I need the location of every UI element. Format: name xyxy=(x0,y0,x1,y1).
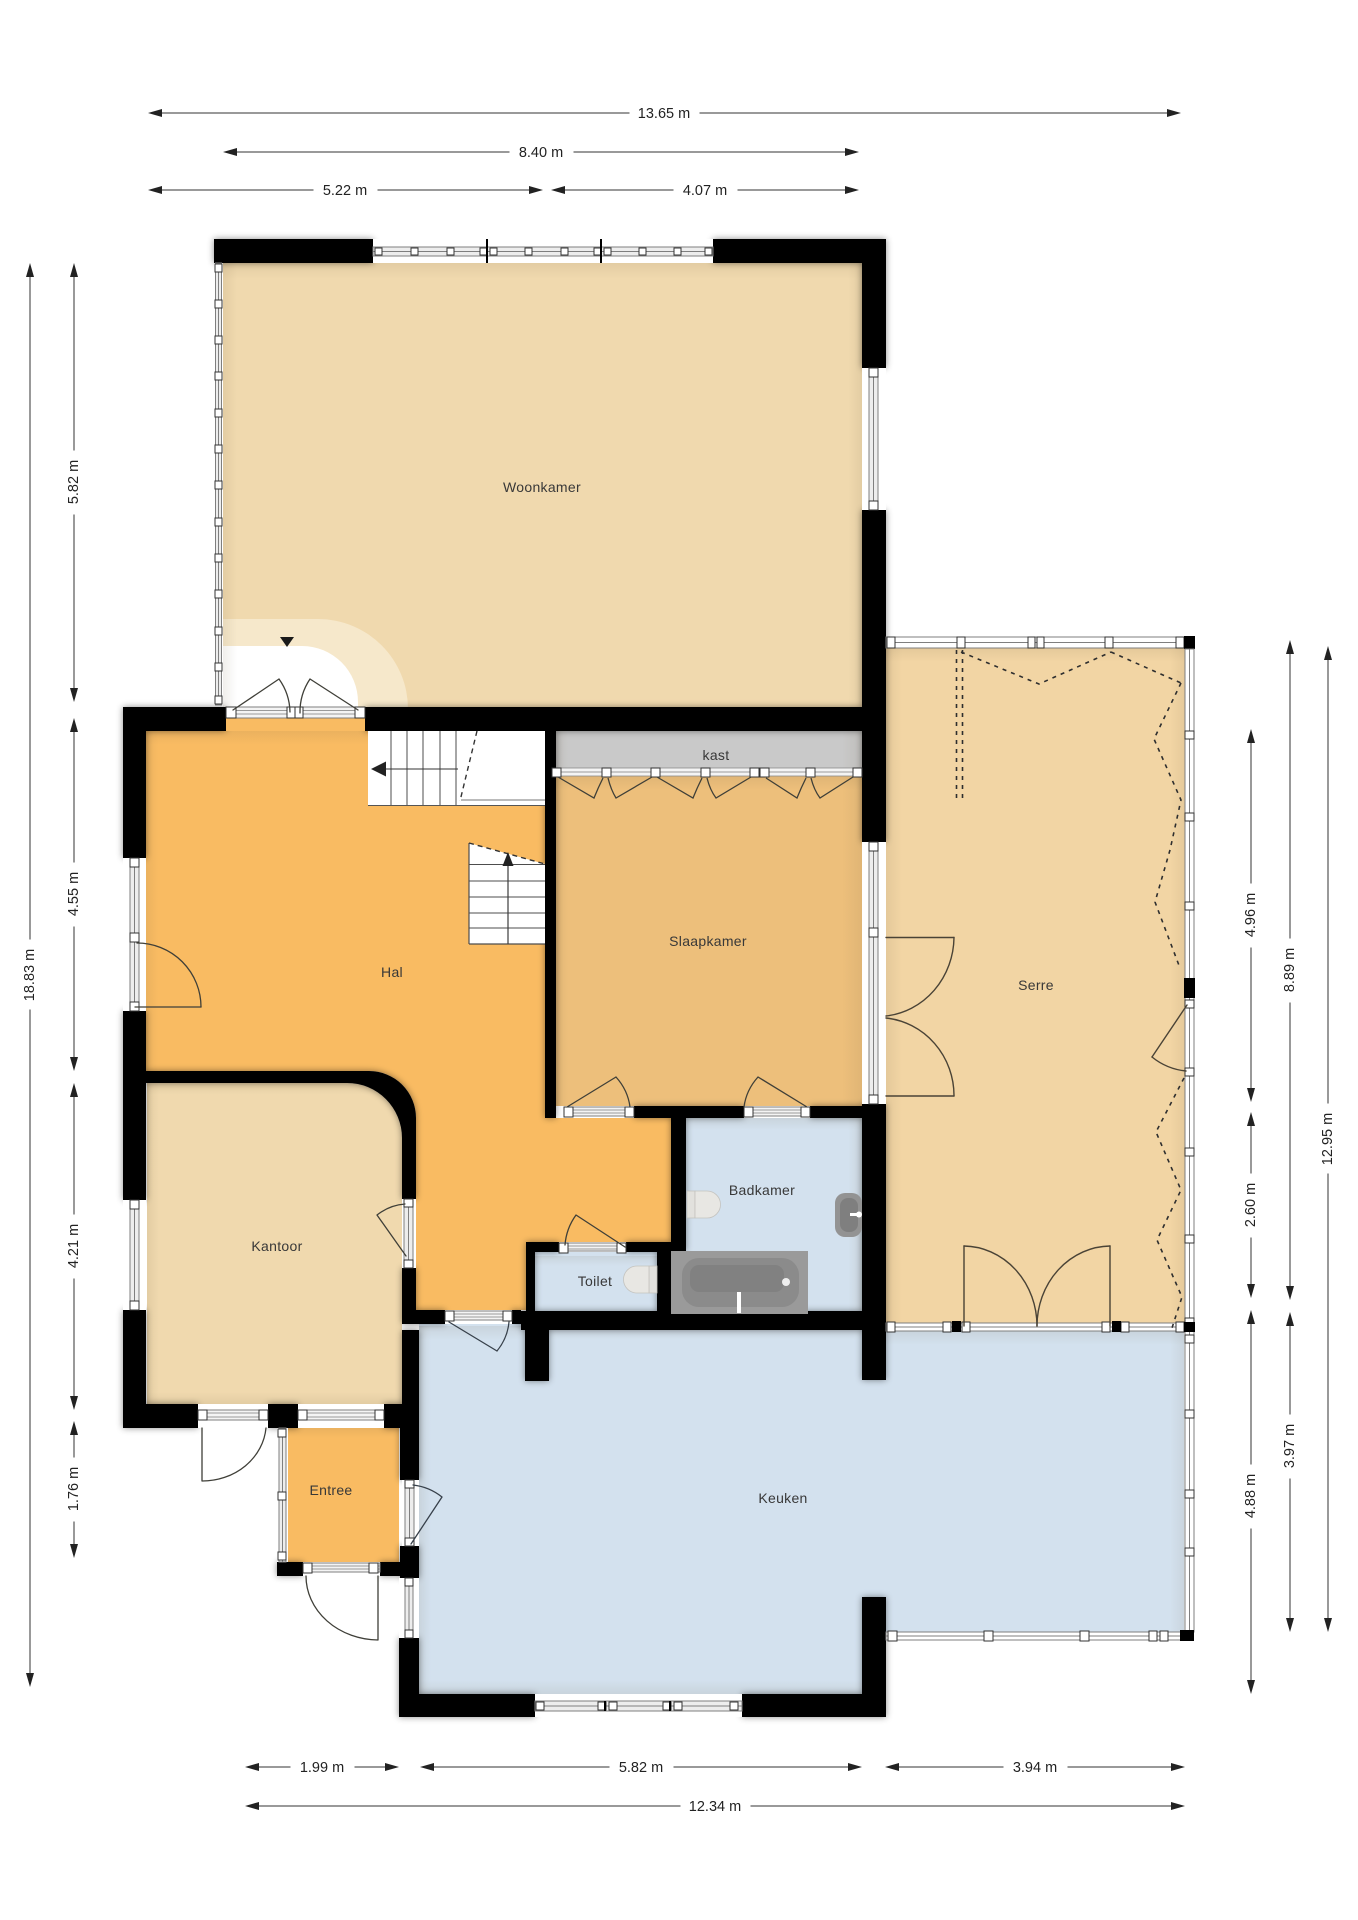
svg-text:4.07 m: 4.07 m xyxy=(683,183,727,199)
svg-text:5.22 m: 5.22 m xyxy=(323,183,367,199)
svg-text:4.96 m: 4.96 m xyxy=(1243,893,1259,937)
svg-text:4.55 m: 4.55 m xyxy=(66,872,82,916)
svg-text:4.21 m: 4.21 m xyxy=(66,1224,82,1268)
svg-text:Keuken: Keuken xyxy=(758,1490,807,1506)
svg-text:3.97 m: 3.97 m xyxy=(1282,1424,1298,1468)
svg-text:Woonkamer: Woonkamer xyxy=(503,479,581,495)
svg-text:kast: kast xyxy=(703,747,730,763)
svg-text:Kantoor: Kantoor xyxy=(251,1238,302,1254)
svg-text:Badkamer: Badkamer xyxy=(729,1182,795,1198)
svg-text:5.82 m: 5.82 m xyxy=(66,460,82,504)
svg-text:13.65 m: 13.65 m xyxy=(638,106,690,122)
svg-text:5.82 m: 5.82 m xyxy=(619,1760,663,1776)
svg-text:12.34 m: 12.34 m xyxy=(689,1799,741,1815)
svg-text:1.99 m: 1.99 m xyxy=(300,1760,344,1776)
svg-text:Slaapkamer: Slaapkamer xyxy=(669,933,747,949)
svg-text:1.76 m: 1.76 m xyxy=(66,1467,82,1511)
svg-text:12.95 m: 12.95 m xyxy=(1320,1113,1336,1165)
svg-text:3.94 m: 3.94 m xyxy=(1013,1760,1057,1776)
svg-text:Entree: Entree xyxy=(309,1482,352,1498)
svg-text:Serre: Serre xyxy=(1018,977,1054,993)
svg-text:8.40 m: 8.40 m xyxy=(519,145,563,161)
svg-text:Toilet: Toilet xyxy=(578,1273,612,1289)
svg-text:18.83 m: 18.83 m xyxy=(22,949,38,1001)
svg-text:Hal: Hal xyxy=(381,964,403,980)
svg-text:4.88 m: 4.88 m xyxy=(1243,1474,1259,1518)
svg-text:8.89 m: 8.89 m xyxy=(1282,948,1298,992)
svg-text:2.60 m: 2.60 m xyxy=(1243,1183,1259,1227)
